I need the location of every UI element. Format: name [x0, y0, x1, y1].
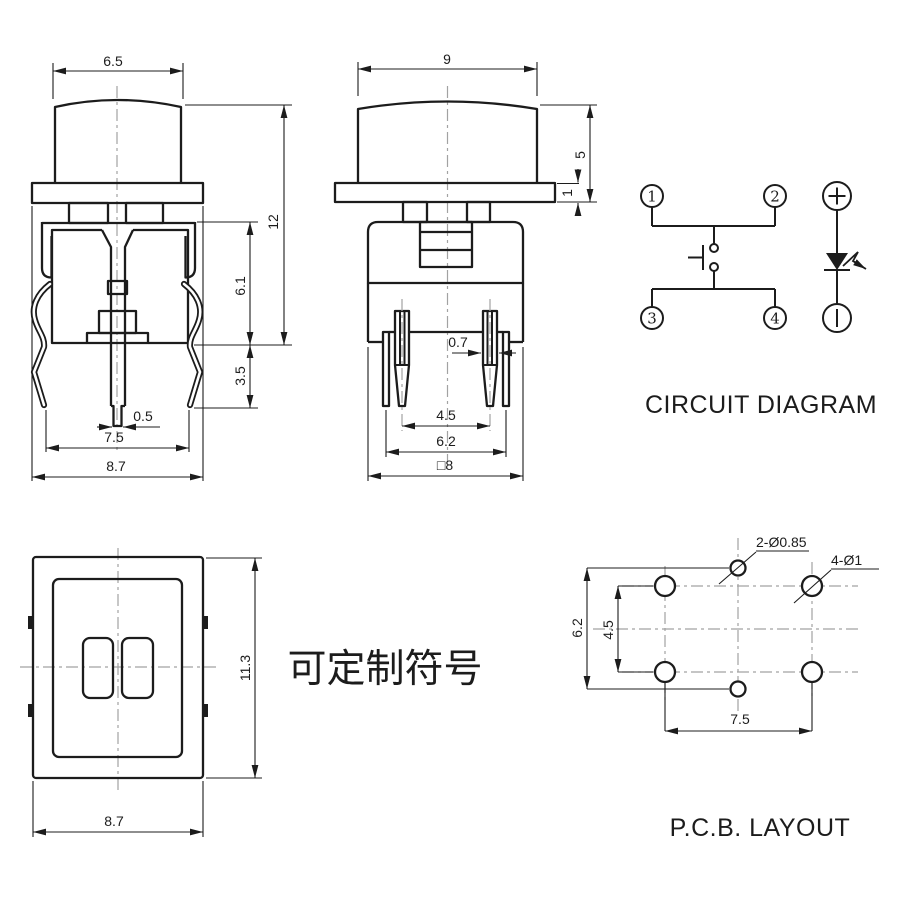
- terminal-4-label: 4: [770, 310, 780, 328]
- pcb-layout-title: P.C.B. LAYOUT: [670, 814, 851, 842]
- front-frame-right: [133, 230, 188, 343]
- side-leg-left: [403, 202, 427, 222]
- pcb-pad-hole: [655, 662, 675, 682]
- front-frame-left: [52, 230, 102, 343]
- side-dim-cap-height-label: 5: [572, 151, 588, 159]
- top-view-tab: [203, 704, 208, 717]
- pcb-pad-hole: [655, 576, 675, 596]
- pcb-pad-hole: [802, 662, 822, 682]
- pcb-dim-hole-row-pitch-label: 6.2: [569, 618, 585, 638]
- terminal-3-label: 3: [647, 310, 657, 328]
- side-dim-flange-thickness: 1: [557, 169, 579, 216]
- top-view-tab: [28, 616, 33, 629]
- front-dim-overall-height-label: 12: [265, 214, 281, 230]
- switch-contact-upper: [710, 244, 718, 252]
- symbol-window-right: [122, 638, 153, 698]
- front-dim-clip-height: 3.5: [194, 345, 258, 408]
- front-dim-flange-width-label: 8.7: [106, 458, 126, 474]
- side-dim-cap-height: 5: [540, 105, 597, 202]
- top-view: 11.3 8.7: [20, 548, 262, 837]
- front-view: [32, 86, 203, 452]
- front-leg-left: [69, 203, 108, 223]
- pcb-callout-small-holes: 2-Ø0.85: [719, 534, 809, 584]
- pcb-layout: 6.2 4.5 7.5 2-Ø0.85 4-Ø1 P.: [569, 534, 879, 842]
- led-diode-icon: [826, 253, 848, 270]
- front-dim-pin-tip-width-label: 0.5: [133, 408, 153, 424]
- side-tab-left: [383, 332, 389, 406]
- front-dim-clip-height-label: 3.5: [232, 366, 248, 386]
- front-channel-left: [102, 230, 111, 406]
- front-dim-body-height-label: 6.1: [232, 276, 248, 296]
- pcb-dim-pad-row-pitch-label: 4.5: [600, 620, 616, 640]
- top-view-tab: [28, 704, 33, 717]
- top-dim-height-label: 11.3: [237, 655, 253, 681]
- terminal-2-label: 2: [770, 188, 780, 206]
- front-dim-pin-tip-width: 0.5: [97, 408, 160, 427]
- pcb-led-hole: [731, 682, 746, 697]
- circuit-diagram: 1 2 3 4 CIRCUIT DIAGRAM: [641, 182, 877, 419]
- front-dim-foot-span-label: 7.5: [104, 429, 124, 445]
- circuit-diagram-title: CIRCUIT DIAGRAM: [645, 391, 877, 419]
- side-leg-right: [467, 202, 490, 222]
- side-dim-pin-pitch-label: 4.5: [436, 407, 456, 423]
- front-dim-body-height: 6.1: [197, 222, 258, 345]
- front-cap-outline: [55, 100, 181, 183]
- pcb-dim-pad-col-pitch-label: 7.5: [730, 711, 750, 727]
- side-dim-flange-thickness-label: 1: [559, 189, 575, 197]
- technical-drawing-sheet: 6.5 12 6.1 3.5 0.5 7.5 8.7: [0, 0, 900, 900]
- side-tab-right: [503, 332, 509, 406]
- pcb-callout-large-holes-label: 4-Ø1: [831, 552, 862, 568]
- front-channel-right: [125, 230, 133, 406]
- front-leg-right: [126, 203, 163, 223]
- side-ratchet: [420, 222, 472, 267]
- front-pin-tip: [111, 406, 125, 426]
- side-dim-body-width-label: □8: [437, 457, 453, 473]
- side-flange: [335, 183, 555, 202]
- pcb-callout-small-holes-label: 2-Ø0.85: [756, 534, 807, 550]
- drawing-svg: 6.5 12 6.1 3.5 0.5 7.5 8.7: [0, 0, 900, 900]
- front-dim-cap-width: 6.5: [53, 53, 183, 99]
- side-dim-tab-pitch-label: 6.2: [436, 433, 456, 449]
- side-dim-cap-width-label: 9: [443, 51, 451, 67]
- terminal-1-label: 1: [647, 188, 657, 206]
- side-dim-pin-width-label: 0.7: [448, 334, 468, 350]
- front-dim-cap-width-label: 6.5: [103, 53, 123, 69]
- switch-contact-lower: [710, 263, 718, 271]
- symbol-window-left: [83, 638, 113, 698]
- front-hook-left: [42, 222, 52, 278]
- top-dim-width-label: 8.7: [104, 813, 124, 829]
- custom-symbol-note: 可定制符号: [287, 647, 482, 692]
- top-dim-height: 11.3: [206, 558, 262, 778]
- side-dim-pin-pitch: 4.5: [402, 407, 490, 426]
- top-view-tab: [203, 616, 208, 629]
